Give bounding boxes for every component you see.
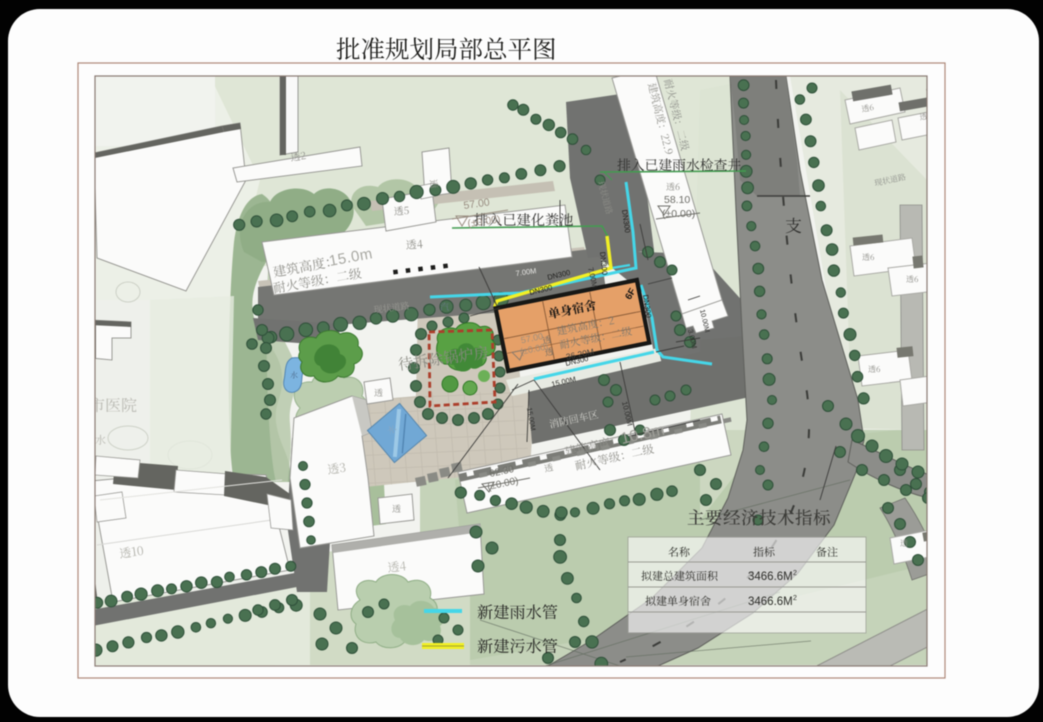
svg-text:3466.6M: 3466.6M — [748, 571, 793, 583]
svg-text:2: 2 — [793, 570, 797, 577]
svg-text:2: 2 — [793, 595, 797, 602]
svg-text:58.10: 58.10 — [664, 194, 690, 206]
svg-text:3466.6M: 3466.6M — [748, 596, 793, 608]
